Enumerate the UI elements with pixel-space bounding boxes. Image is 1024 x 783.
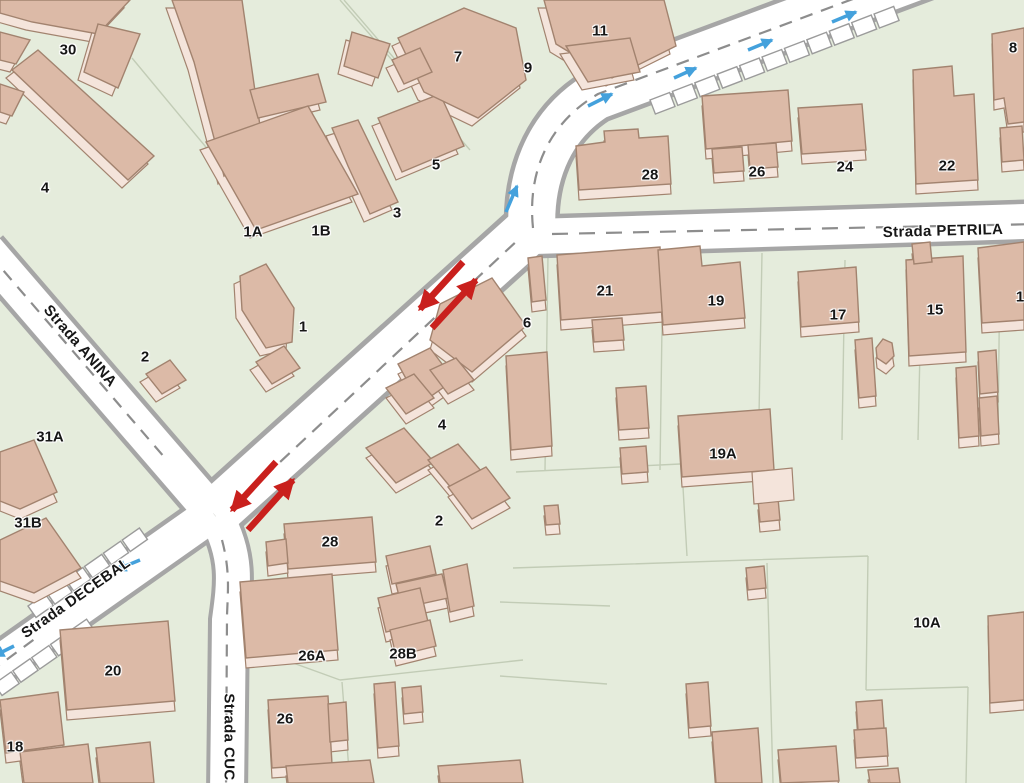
building-19a-annex <box>752 468 794 504</box>
map-canvas[interactable]: Strada ANINA Strada PETRILA Strada DECEB… <box>0 0 1024 783</box>
map-graphics <box>0 0 1024 783</box>
